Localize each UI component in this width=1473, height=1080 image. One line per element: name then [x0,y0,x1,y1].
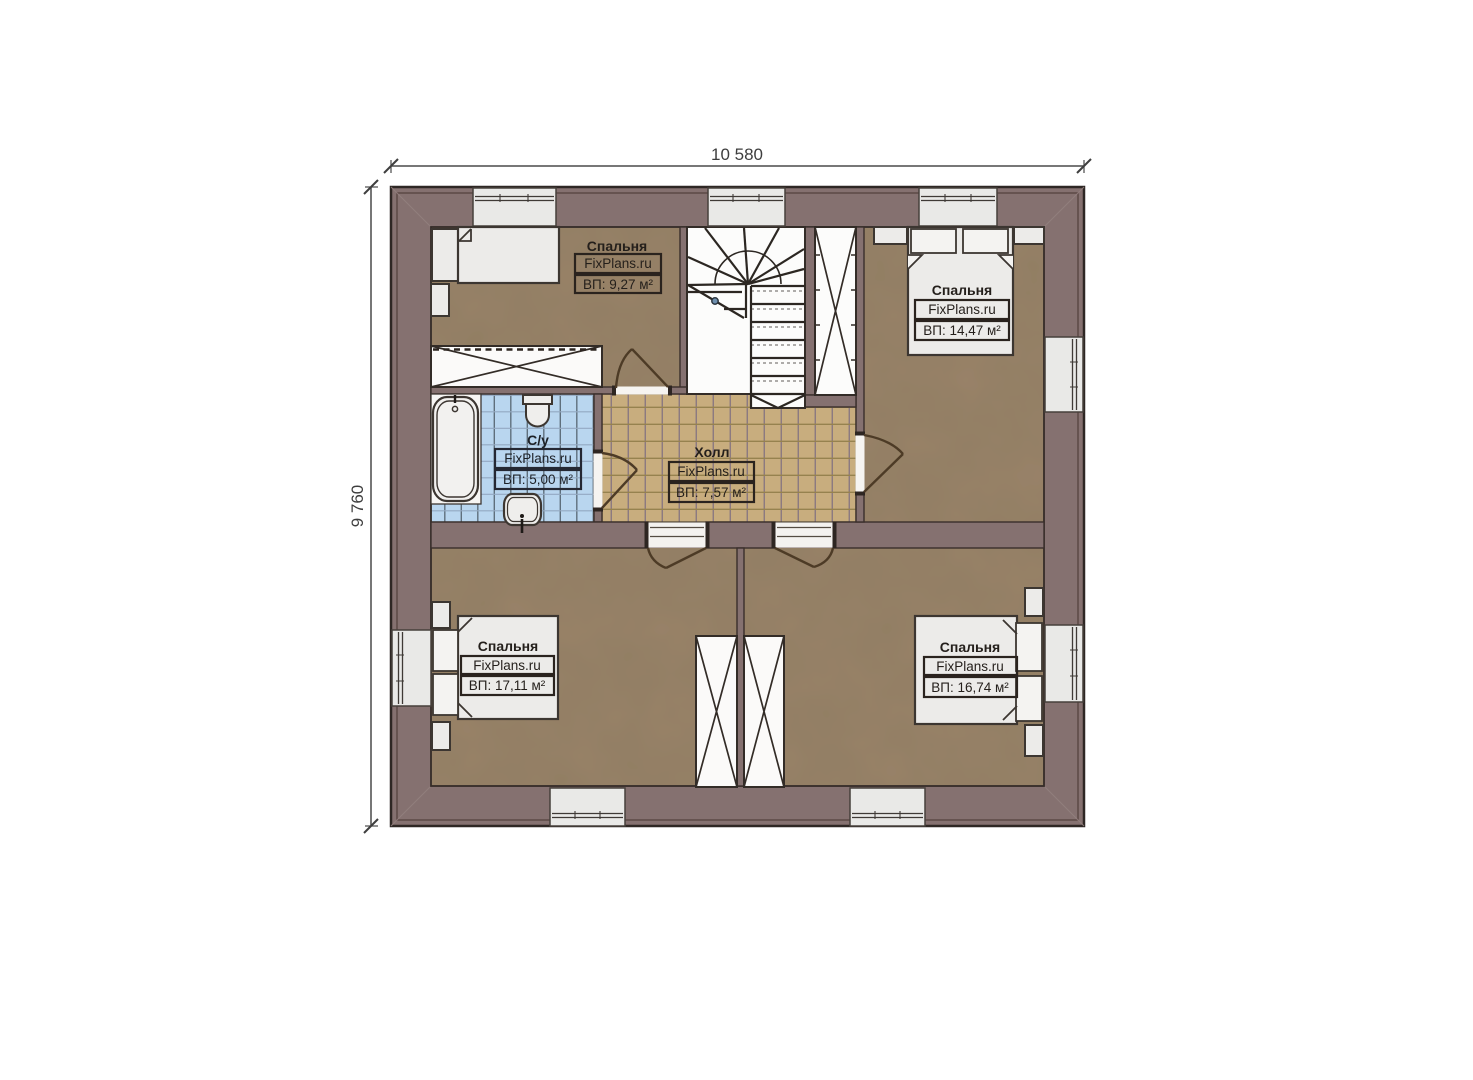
svg-text:ВП: 9,27 м²: ВП: 9,27 м² [583,277,654,292]
svg-text:ВП: 5,00 м²: ВП: 5,00 м² [503,472,574,487]
svg-text:Спальня: Спальня [940,639,1000,655]
svg-text:Холл: Холл [694,444,729,460]
svg-text:Спальня: Спальня [587,238,647,254]
svg-text:ВП: 16,74 м²: ВП: 16,74 м² [931,680,1009,695]
svg-text:9 760: 9 760 [348,485,367,528]
svg-text:Спальня: Спальня [478,638,538,654]
svg-text:FixPlans.ru: FixPlans.ru [928,302,996,317]
svg-text:FixPlans.ru: FixPlans.ru [504,451,572,466]
svg-text:FixPlans.ru: FixPlans.ru [473,658,541,673]
svg-text:Спальня: Спальня [932,282,992,298]
svg-text:FixPlans.ru: FixPlans.ru [677,464,745,479]
svg-text:10 580: 10 580 [711,145,763,164]
svg-text:FixPlans.ru: FixPlans.ru [936,659,1004,674]
svg-text:FixPlans.ru: FixPlans.ru [584,256,652,271]
svg-text:ВП: 14,47 м²: ВП: 14,47 м² [923,323,1001,338]
svg-text:С/у: С/у [527,432,549,448]
svg-text:ВП: 17,11 м²: ВП: 17,11 м² [469,678,546,693]
svg-text:ВП: 7,57 м²: ВП: 7,57 м² [676,485,747,500]
